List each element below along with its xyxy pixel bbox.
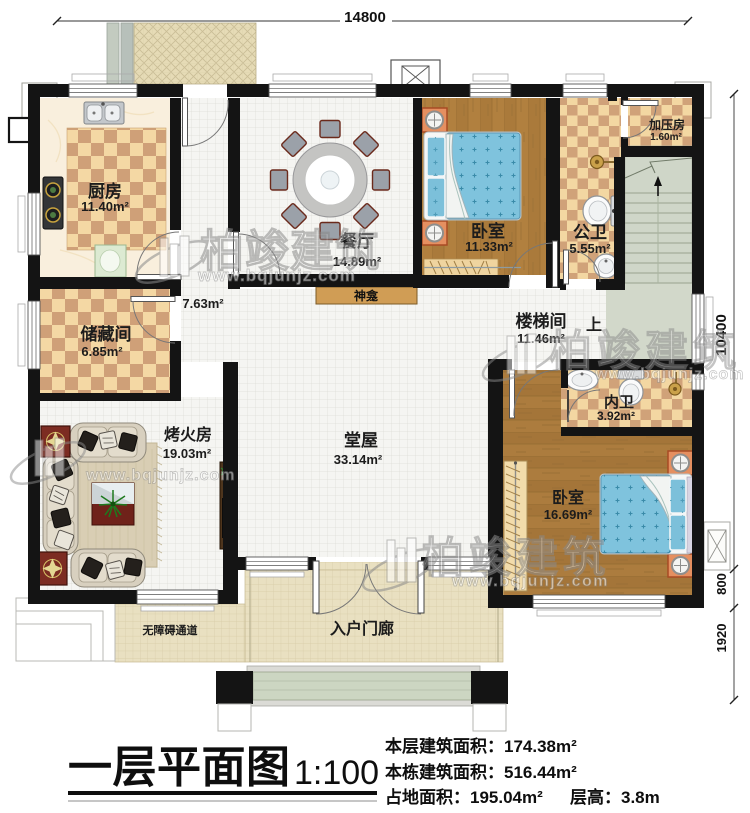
svg-text:11.33m²: 11.33m² [465, 239, 513, 254]
svg-text:层高：3.8m: 层高：3.8m [570, 787, 660, 807]
svg-text:33.14m²: 33.14m² [334, 452, 383, 467]
svg-text:19.03m²: 19.03m² [163, 446, 212, 461]
svg-text:7.63m²: 7.63m² [182, 296, 224, 311]
svg-text:800: 800 [714, 573, 729, 595]
svg-text:无障碍通道: 无障碍通道 [142, 623, 198, 637]
svg-text:加压房: 加压房 [648, 117, 685, 132]
svg-text:公卫: 公卫 [573, 223, 607, 242]
svg-text:神龛: 神龛 [354, 288, 379, 303]
svg-text:1920: 1920 [714, 624, 729, 653]
svg-text:1.60m²: 1.60m² [650, 132, 682, 143]
svg-text:www.bqjunjz.com: www.bqjunjz.com [451, 573, 609, 590]
svg-text:5.55m²: 5.55m² [569, 241, 611, 256]
svg-text:www.bqjunjz.com: www.bqjunjz.com [197, 266, 356, 285]
svg-text:堂屋: 堂屋 [344, 430, 378, 450]
svg-text:厨房: 厨房 [88, 181, 122, 201]
svg-text:11.40m²: 11.40m² [81, 199, 129, 214]
svg-text:16.69m²: 16.69m² [544, 507, 593, 522]
svg-text:www.bqjunjz.com: www.bqjunjz.com [85, 467, 236, 484]
svg-text:1:100: 1:100 [294, 754, 379, 792]
svg-text:3.92m²: 3.92m² [597, 409, 635, 423]
svg-text:烤火房: 烤火房 [164, 425, 212, 444]
svg-text:占地面积：195.04m²: 占地面积：195.04m² [385, 787, 543, 807]
svg-text:卧室: 卧室 [471, 221, 505, 241]
svg-text:储藏间: 储藏间 [81, 324, 132, 344]
svg-text:本栋建筑面积：516.44m²: 本栋建筑面积：516.44m² [385, 762, 577, 782]
svg-text:6.85m²: 6.85m² [81, 344, 123, 359]
svg-text:www.bqjunjz.com: www.bqjunjz.com [594, 366, 745, 383]
svg-text:一层平面图: 一层平面图 [68, 743, 291, 792]
svg-text:14800: 14800 [344, 9, 386, 26]
svg-text:入户门廊: 入户门廊 [330, 619, 394, 638]
svg-text:卧室: 卧室 [552, 488, 584, 507]
svg-text:本层建筑面积：174.38m²: 本层建筑面积：174.38m² [385, 736, 577, 756]
